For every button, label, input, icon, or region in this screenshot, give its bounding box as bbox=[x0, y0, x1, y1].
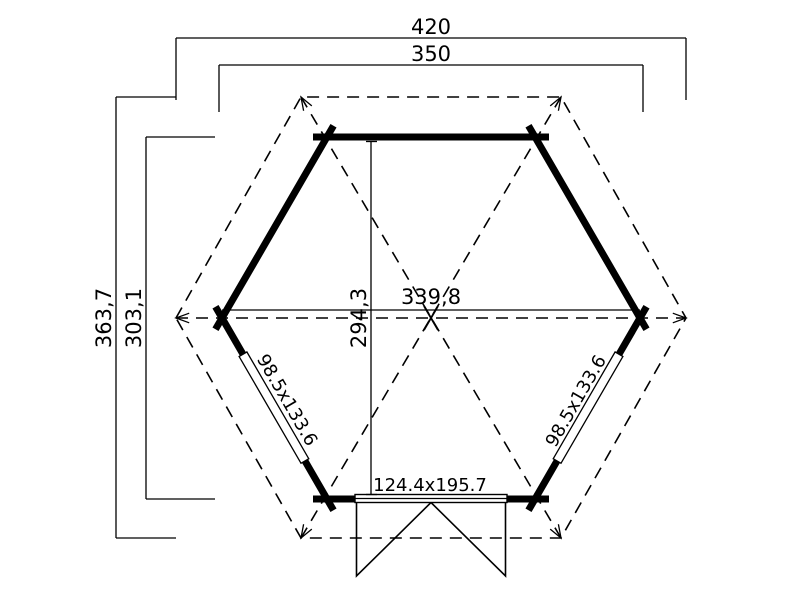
floor-plan-page: 98.5x133.6 98.5x133.6 124.4x195.7 420 35… bbox=[0, 0, 800, 600]
dimension-inner-width: 339,8 bbox=[222, 285, 640, 310]
dimension-roof-depth-value: 363,7 bbox=[92, 288, 116, 348]
wall-lower-right-a bbox=[619, 307, 647, 355]
dimension-roof-width-value: 420 bbox=[411, 15, 451, 39]
dimension-inner-depth: 294,3 bbox=[347, 141, 377, 495]
wall-upper-right bbox=[529, 126, 647, 330]
dimension-inner-width-value: 339,8 bbox=[401, 285, 461, 309]
window-left: 98.5x133.6 bbox=[239, 351, 321, 463]
door: 124.4x195.7 bbox=[355, 475, 507, 576]
door-label: 124.4x195.7 bbox=[373, 475, 487, 496]
dimension-wall-depth-value: 303,1 bbox=[122, 288, 146, 348]
dimension-inner-depth-value: 294,3 bbox=[347, 288, 371, 348]
dimension-wall-width-value: 350 bbox=[411, 42, 451, 66]
wall-upper-left bbox=[216, 126, 334, 330]
door-leaf-right bbox=[431, 503, 506, 577]
floor-plan-canvas: 98.5x133.6 98.5x133.6 124.4x195.7 420 35… bbox=[0, 0, 800, 600]
wall-lower-left-a bbox=[216, 307, 244, 355]
wall-lower-right-b bbox=[529, 461, 558, 510]
wall-lower-left-b bbox=[305, 461, 334, 510]
roof-outline bbox=[176, 97, 686, 538]
window-right: 98.5x133.6 bbox=[542, 352, 623, 463]
door-leaf-left bbox=[357, 503, 432, 577]
dimension-wall-width: 350 bbox=[219, 42, 643, 112]
